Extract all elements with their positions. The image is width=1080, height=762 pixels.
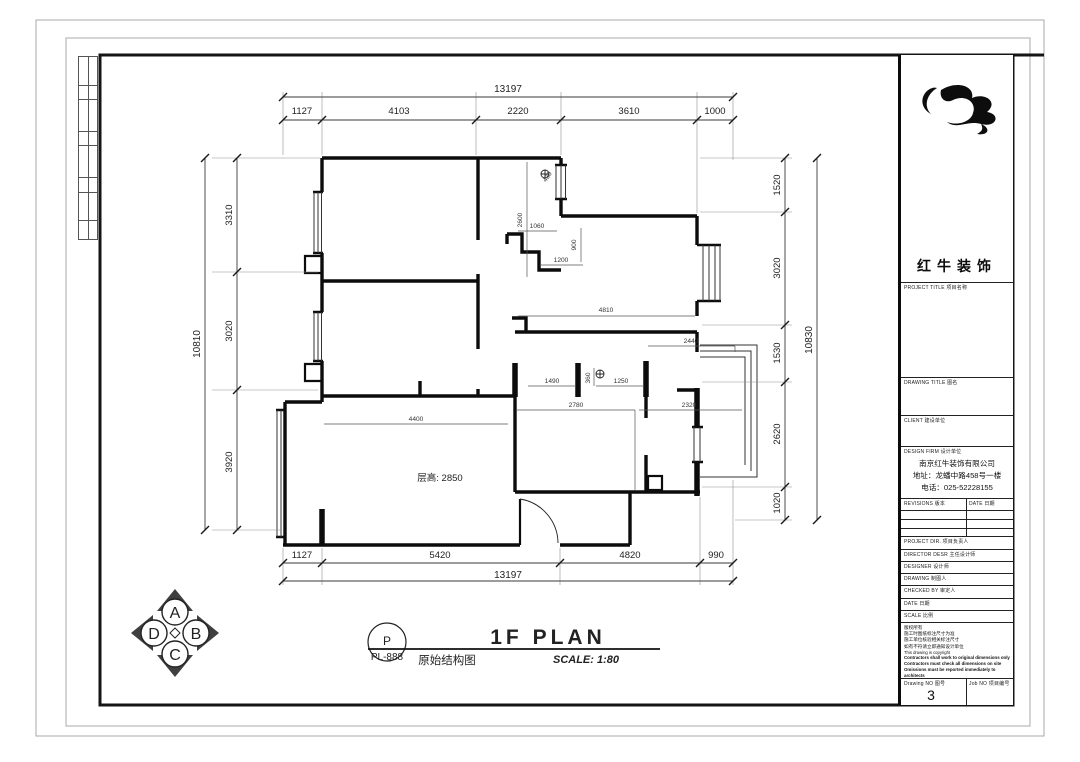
bull-logo-icon: [915, 73, 1005, 143]
room-height-note: 层高: 2850: [417, 472, 462, 484]
plan-title-group: P PL-888 原始结构图 1F PLAN SCALE: 1:80: [368, 623, 660, 667]
project-title-row: PROJECT TITLE 项目名称: [901, 283, 1013, 378]
dim-label: 1520: [772, 174, 783, 195]
firm-phone: 电话：025-52228155: [901, 482, 1013, 494]
drawing-title-row: DRAWING TITLE 图名: [901, 378, 1013, 416]
compass-letter: B: [191, 626, 202, 643]
revisions-header-row: REVISIONS 版本 DATE 日期: [901, 499, 1013, 511]
plan-tag-letter: P: [383, 634, 391, 648]
dim-label: 13197: [494, 84, 522, 95]
checked-row: CHECKED BY 审定人: [901, 586, 1013, 599]
dim-label: 2320: [682, 402, 697, 409]
dim-label: 4103: [388, 106, 409, 117]
revision-row: [901, 529, 1013, 537]
dim-label: 2780: [569, 402, 584, 409]
dim-label: 3920: [224, 451, 235, 472]
dim-label: 10830: [804, 326, 815, 354]
client-row: CLIENT 建设单位: [901, 416, 1013, 447]
dim-chain-bottom: 1127 5420 4820 990 13197: [279, 480, 737, 585]
project-dir-label: PROJECT DIR. 项目负责人: [904, 538, 969, 545]
plan-title: 1F PLAN: [490, 626, 606, 649]
interior-dims: 2600 430 1060 900 1200 4810 2440 1490 36…: [324, 162, 742, 490]
designer-row: DESIGNER 设计师: [901, 562, 1013, 574]
dim-label: 2600: [517, 212, 524, 227]
project-title-label: PROJECT TITLE 项目名称: [904, 284, 967, 291]
drawing-row: DRAWING 制图人: [901, 574, 1013, 586]
compass-icon: A B C D: [131, 589, 219, 677]
dim-label: 1250: [614, 378, 629, 385]
drawing-number: 3: [901, 687, 961, 703]
dim-label: 1127: [292, 550, 312, 561]
drawing-label: DRAWING 制图人: [904, 575, 947, 582]
dim-label: 1060: [530, 223, 545, 230]
scale-row: SCALE 比例: [901, 611, 1013, 623]
compass-letter: A: [170, 605, 181, 622]
compass-letter: D: [148, 626, 160, 643]
revision-row: [901, 511, 1013, 520]
revision-strip: [78, 56, 98, 240]
dim-label: 3020: [772, 257, 783, 278]
dim-label: 360: [585, 372, 592, 383]
dim-chain-top: 13197 1127 4103 2220 3610 1000: [279, 84, 737, 213]
director-row: DIRECTOR DESR 主任设计师: [901, 550, 1013, 562]
dim-label: 10810: [192, 330, 203, 358]
dim-chain-right: 1520 3020 1530 2620 1020 10830: [700, 154, 821, 524]
dim-chain-left: 3310 3020 3920 10810: [192, 154, 320, 534]
project-dir-row: PROJECT DIR. 项目负责人: [901, 537, 1013, 550]
firm-name: 南京红牛装饰有限公司: [901, 458, 1013, 470]
dim-label: 4810: [599, 307, 614, 314]
drawing-title-label: DRAWING TITLE 图名: [904, 379, 957, 386]
drawing-no-label: Drawing NO 图号: [904, 680, 945, 687]
plan-tag-number: PL-888: [371, 652, 404, 663]
client-label: CLIENT 建设单位: [904, 417, 945, 424]
design-firm-label: DESIGN FIRM 设计单位: [904, 448, 961, 455]
drain-symbol-icon: [541, 170, 604, 378]
design-firm-row: DESIGN FIRM 设计单位 南京红牛装饰有限公司 地址：龙蟠中路458号一…: [901, 447, 1013, 499]
note-line: Omissions must be reported immediately t…: [904, 667, 1010, 679]
dim-label: 1490: [545, 378, 560, 385]
dim-label: 3310: [224, 204, 235, 225]
revisions-label: REVISIONS 版本: [904, 500, 945, 507]
plan-subtitle: 原始结构图: [418, 653, 476, 667]
dim-label: 990: [708, 550, 724, 561]
logo-area: 红牛装饰: [901, 55, 1013, 283]
dim-label: 2220: [507, 106, 528, 117]
dim-label: 900: [571, 239, 578, 250]
designer-label: DESIGNER 设计师: [904, 563, 949, 570]
dim-label: 2440: [684, 338, 699, 345]
notes-row: 版权所有 施工时图纸标注尺寸为准 施工单位核验相关标注尺寸 如有不符请立即通知设…: [901, 623, 1013, 679]
dim-label: 3610: [618, 106, 639, 117]
dim-label: 1530: [772, 342, 783, 363]
plan-scale: SCALE: 1:80: [553, 654, 620, 666]
sheet-number-row: Drawing NO 图号 Job NO 项目编号 3: [901, 679, 1013, 705]
dim-label: 1200: [554, 257, 569, 264]
checked-label: CHECKED BY 审定人: [904, 587, 956, 594]
drawing-sheet: 13197 1127 4103 2220 3610 1000 1127 5420…: [0, 0, 1080, 762]
date-label: DATE 日期: [904, 600, 930, 607]
scale-label: SCALE 比例: [904, 612, 933, 619]
dim-label: 13197: [494, 570, 522, 581]
date-col-label: DATE 日期: [969, 500, 995, 507]
title-block: 红牛装饰 PROJECT TITLE 项目名称 DRAWING TITLE 图名…: [898, 55, 1013, 705]
dim-label: 1127: [292, 106, 312, 117]
job-no-label: Job NO 项目编号: [969, 680, 1010, 687]
compass-letter: C: [169, 647, 181, 664]
dim-label: 2620: [772, 423, 783, 444]
dim-label: 1020: [772, 492, 783, 513]
dim-label: 4820: [619, 550, 640, 561]
dim-label: 5420: [429, 550, 450, 561]
revision-row: [901, 520, 1013, 529]
dim-label: 4400: [409, 416, 424, 423]
date-row: DATE 日期: [901, 599, 1013, 611]
logo-text: 红牛装饰: [901, 256, 1013, 276]
dim-label: 430: [542, 170, 554, 183]
dim-label: 3020: [224, 320, 235, 341]
firm-address: 地址：龙蟠中路458号一楼: [901, 470, 1013, 482]
dim-label: 1000: [704, 106, 725, 117]
director-label: DIRECTOR DESR 主任设计师: [904, 551, 976, 558]
